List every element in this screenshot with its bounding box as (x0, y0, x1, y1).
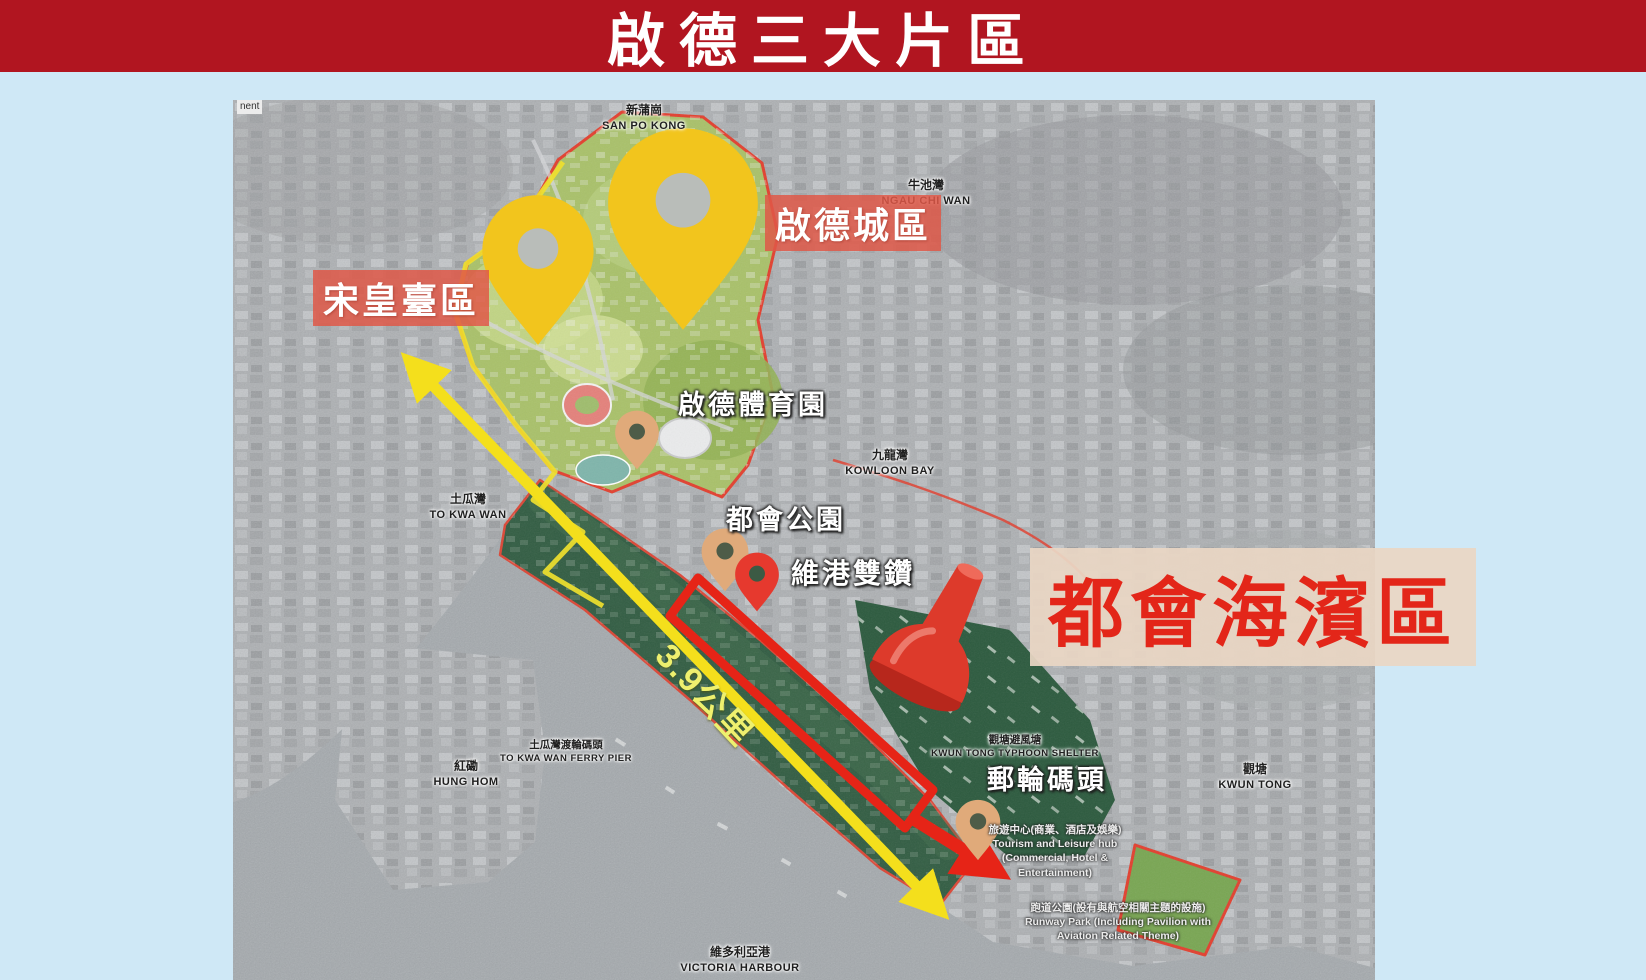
region-label-metro-waterfront: 都會海濱區 (1030, 548, 1476, 666)
page-title: 啟德三大片區 (607, 0, 1039, 78)
title-banner: 啟德三大片區 (0, 0, 1646, 72)
district-label-kwun-tong: 觀塘 KWUN TONG (1218, 762, 1291, 792)
region-label-kai-tak-city: 啟德城區 (765, 195, 941, 251)
district-label-to-kwa-wan: 土瓜灣 TO KWA WAN (429, 492, 506, 522)
district-label-kowloon-bay: 九龍灣 KOWLOON BAY (845, 448, 934, 478)
region-label-sung-wong-toi: 宋皇臺區 (313, 270, 489, 326)
district-label-hung-hom: 紅磡 HUNG HOM (433, 759, 498, 789)
district-label-victoria-harbour: 維多利亞港 VICTORIA HARBOUR (680, 945, 799, 975)
annotation-runway-park: 跑道公園(設有與航空相關主題的設施) Runway Park (Includin… (1021, 901, 1216, 944)
district-label-san-po-kong: 新蒲崗 SAN PO KONG (602, 103, 686, 133)
district-label-typhoon-shelter: 觀塘避風塘 KWUN TONG TYPHOON SHELTER (931, 734, 1099, 760)
kai-tak-aerial-map: nent 新蒲崗 SAN PO KONG 牛池灣 NGAU CHI WAN 九龍… (233, 100, 1375, 980)
annotation-tourism-hub: 旅遊中心(商業、酒店及娛樂) Tourism and Leisure hub (… (980, 823, 1130, 880)
place-label-twin-diamonds: 維港雙鑽 (791, 552, 915, 592)
place-label-sports-park: 啟德體育園 (678, 383, 828, 422)
place-label-metro-park: 都會公園 (726, 498, 846, 537)
place-label-cruise-terminal: 郵輪碼頭 (987, 758, 1107, 797)
district-label-ferry-pier: 土瓜灣渡輪碼頭 TO KWA WAN FERRY PIER (500, 739, 632, 765)
map-corner-fragment: nent (237, 100, 262, 114)
